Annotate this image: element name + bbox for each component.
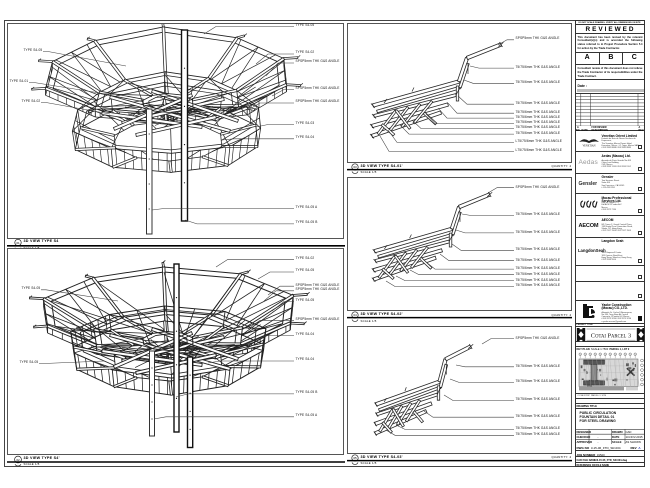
- svg-text:VENETIAN: VENETIAN: [582, 145, 595, 148]
- svg-text:05: 05: [353, 456, 357, 460]
- svg-text:COTAI PARCEL 3: COTAI PARCEL 3: [590, 332, 630, 339]
- svg-text:03: 03: [353, 165, 357, 169]
- svg-text:04: 04: [353, 314, 357, 318]
- svg-text:02: 02: [16, 457, 20, 461]
- svg-text:01: 01: [16, 240, 20, 244]
